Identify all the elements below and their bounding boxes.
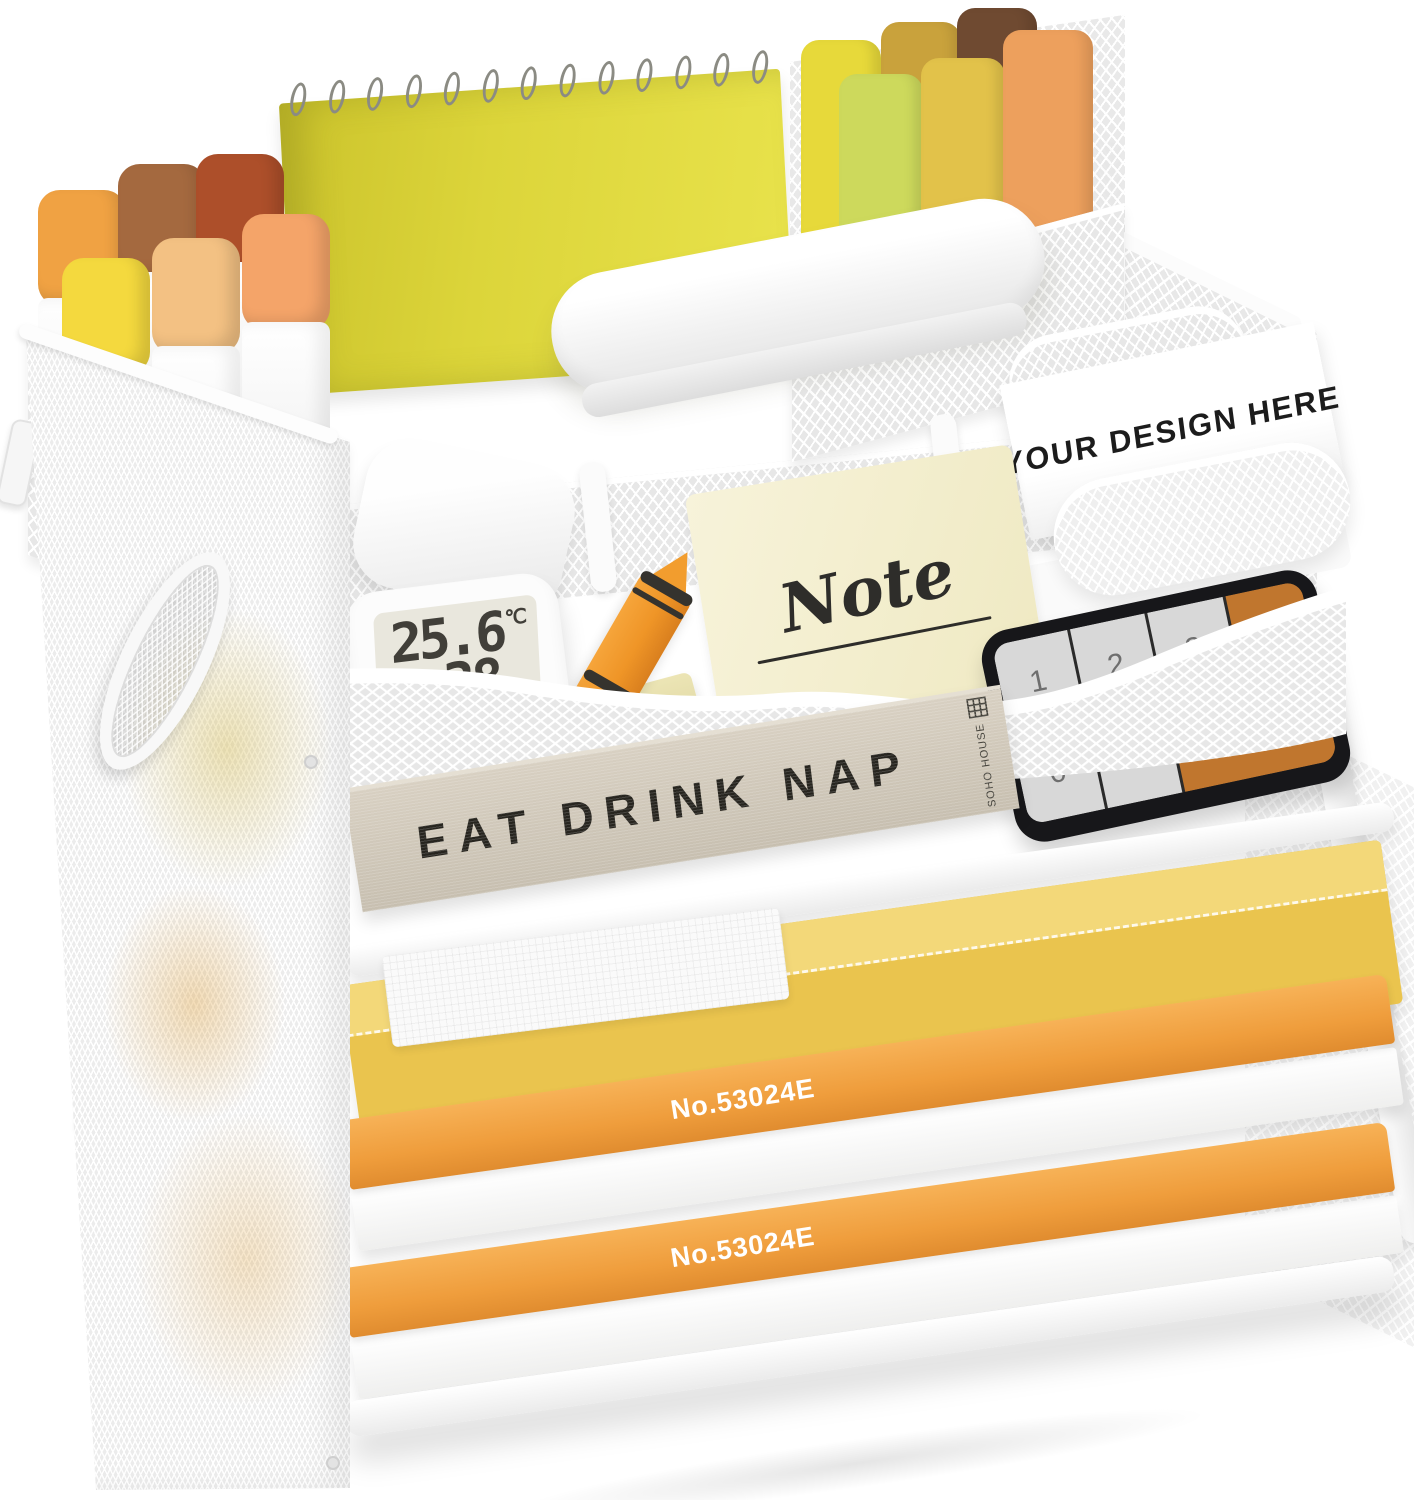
product-photo: YOUR DESIGN HERE UHU stic Glue Stick 25.…	[0, 0, 1414, 1500]
screw	[326, 1456, 340, 1470]
spiral-ring	[673, 54, 694, 90]
spiral-ring	[750, 49, 771, 85]
paper-stack-label: No.53024E	[668, 1073, 817, 1126]
spiral-ring	[519, 65, 540, 101]
spiral-ring	[711, 52, 732, 88]
marker-cap	[152, 238, 240, 354]
handle-cutout	[74, 535, 256, 787]
spiral-ring	[634, 57, 655, 93]
paper-stack-label: No.53024E	[668, 1221, 817, 1274]
spiral-ring	[596, 60, 617, 96]
book-publisher: SOHO HOUSE	[974, 723, 999, 808]
spiral-ring	[442, 71, 463, 107]
spiral-ring	[480, 68, 501, 104]
book-grid-icon	[966, 696, 989, 719]
spiral-ring	[326, 79, 347, 115]
marker-cap	[242, 214, 330, 330]
spiral-rings	[290, 50, 769, 117]
spiral-ring	[365, 76, 386, 112]
left-side-panel	[26, 330, 350, 1492]
spiral-ring	[403, 73, 424, 109]
spiral-ring	[288, 81, 309, 117]
screw	[304, 755, 318, 769]
spiral-ring	[557, 62, 578, 98]
